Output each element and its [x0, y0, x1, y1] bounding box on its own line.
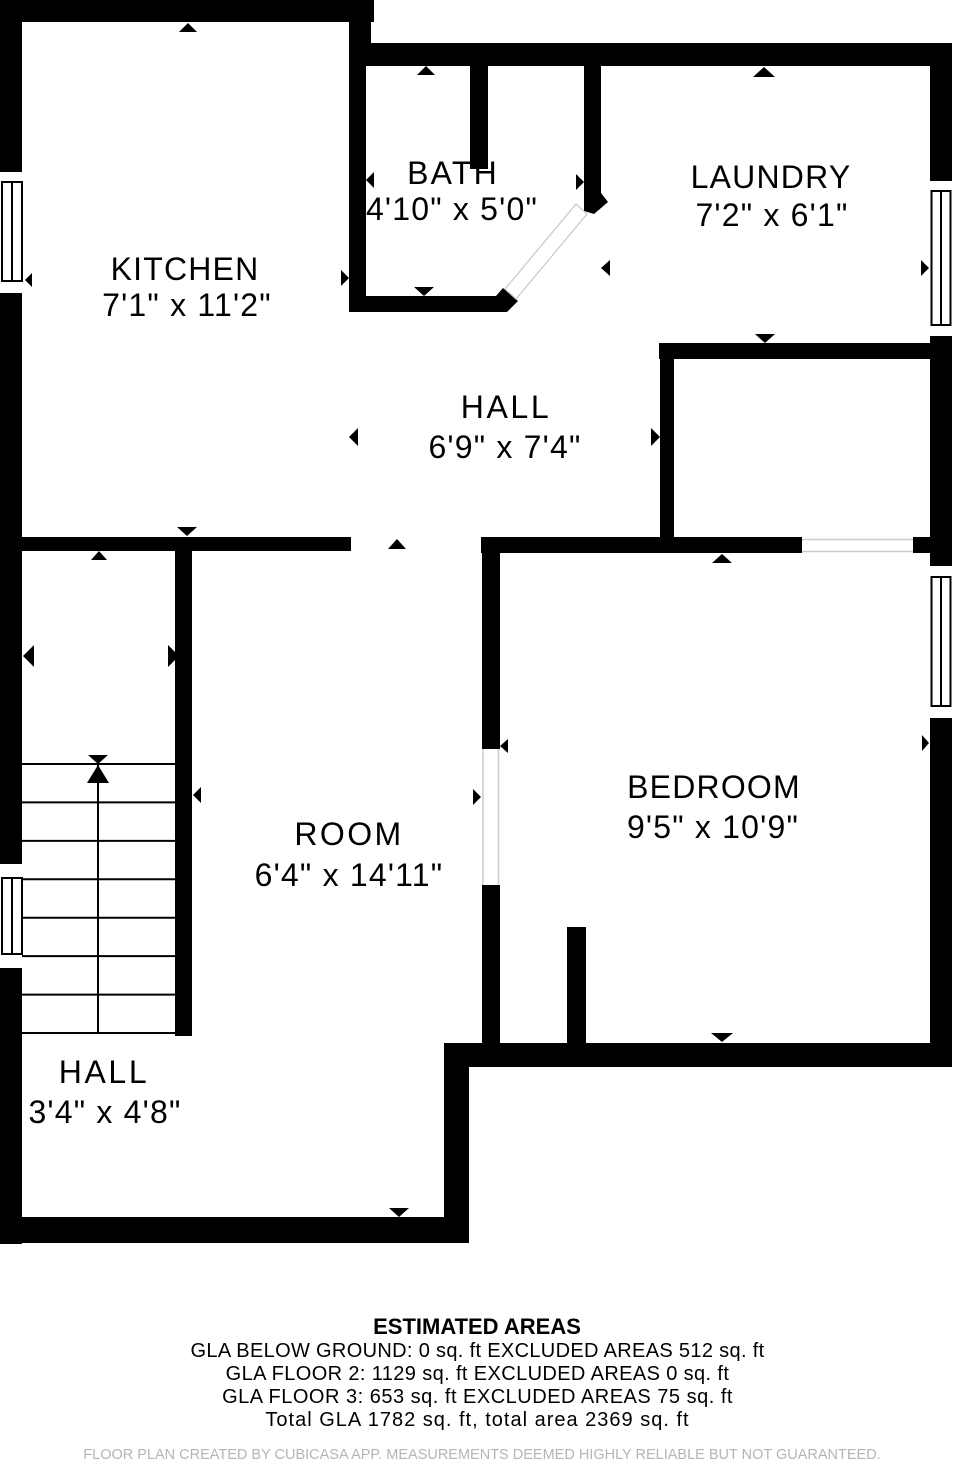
svg-text:BATH: BATH: [407, 155, 499, 191]
svg-text:7'2" x 6'1": 7'2" x 6'1": [695, 197, 848, 233]
svg-text:Total GLA 1782 sq. ft, total a: Total GLA 1782 sq. ft, total area 2369 s…: [265, 1409, 689, 1431]
svg-text:GLA FLOOR 3: 653 sq. ft EXCLUD: GLA FLOOR 3: 653 sq. ft EXCLUDED AREAS 7…: [222, 1386, 733, 1408]
svg-text:HALL: HALL: [59, 1054, 149, 1090]
svg-text:6'4" x 14'11": 6'4" x 14'11": [255, 857, 444, 893]
svg-text:9'5" x 10'9": 9'5" x 10'9": [627, 809, 799, 845]
svg-text:GLA FLOOR 2: 1129 sq. ft EXCLU: GLA FLOOR 2: 1129 sq. ft EXCLUDED AREAS …: [226, 1363, 730, 1385]
svg-text:KITCHEN: KITCHEN: [111, 251, 260, 287]
svg-text:GLA BELOW GROUND: 0 sq. ft EXC: GLA BELOW GROUND: 0 sq. ft EXCLUDED AREA…: [190, 1340, 764, 1362]
svg-text:LAUNDRY: LAUNDRY: [691, 159, 852, 195]
svg-text:ROOM: ROOM: [294, 816, 403, 852]
svg-text:4'10" x 5'0": 4'10" x 5'0": [366, 191, 538, 227]
svg-text:BEDROOM: BEDROOM: [627, 769, 801, 805]
svg-text:ESTIMATED AREAS: ESTIMATED AREAS: [373, 1314, 581, 1339]
svg-text:HALL: HALL: [461, 389, 551, 425]
svg-text:FLOOR PLAN CREATED BY CUBICASA: FLOOR PLAN CREATED BY CUBICASA APP. MEAS…: [83, 1447, 880, 1463]
svg-text:3'4" x 4'8": 3'4" x 4'8": [28, 1094, 181, 1130]
svg-text:6'9" x 7'4": 6'9" x 7'4": [428, 429, 581, 465]
svg-text:7'1" x 11'2": 7'1" x 11'2": [102, 287, 272, 323]
